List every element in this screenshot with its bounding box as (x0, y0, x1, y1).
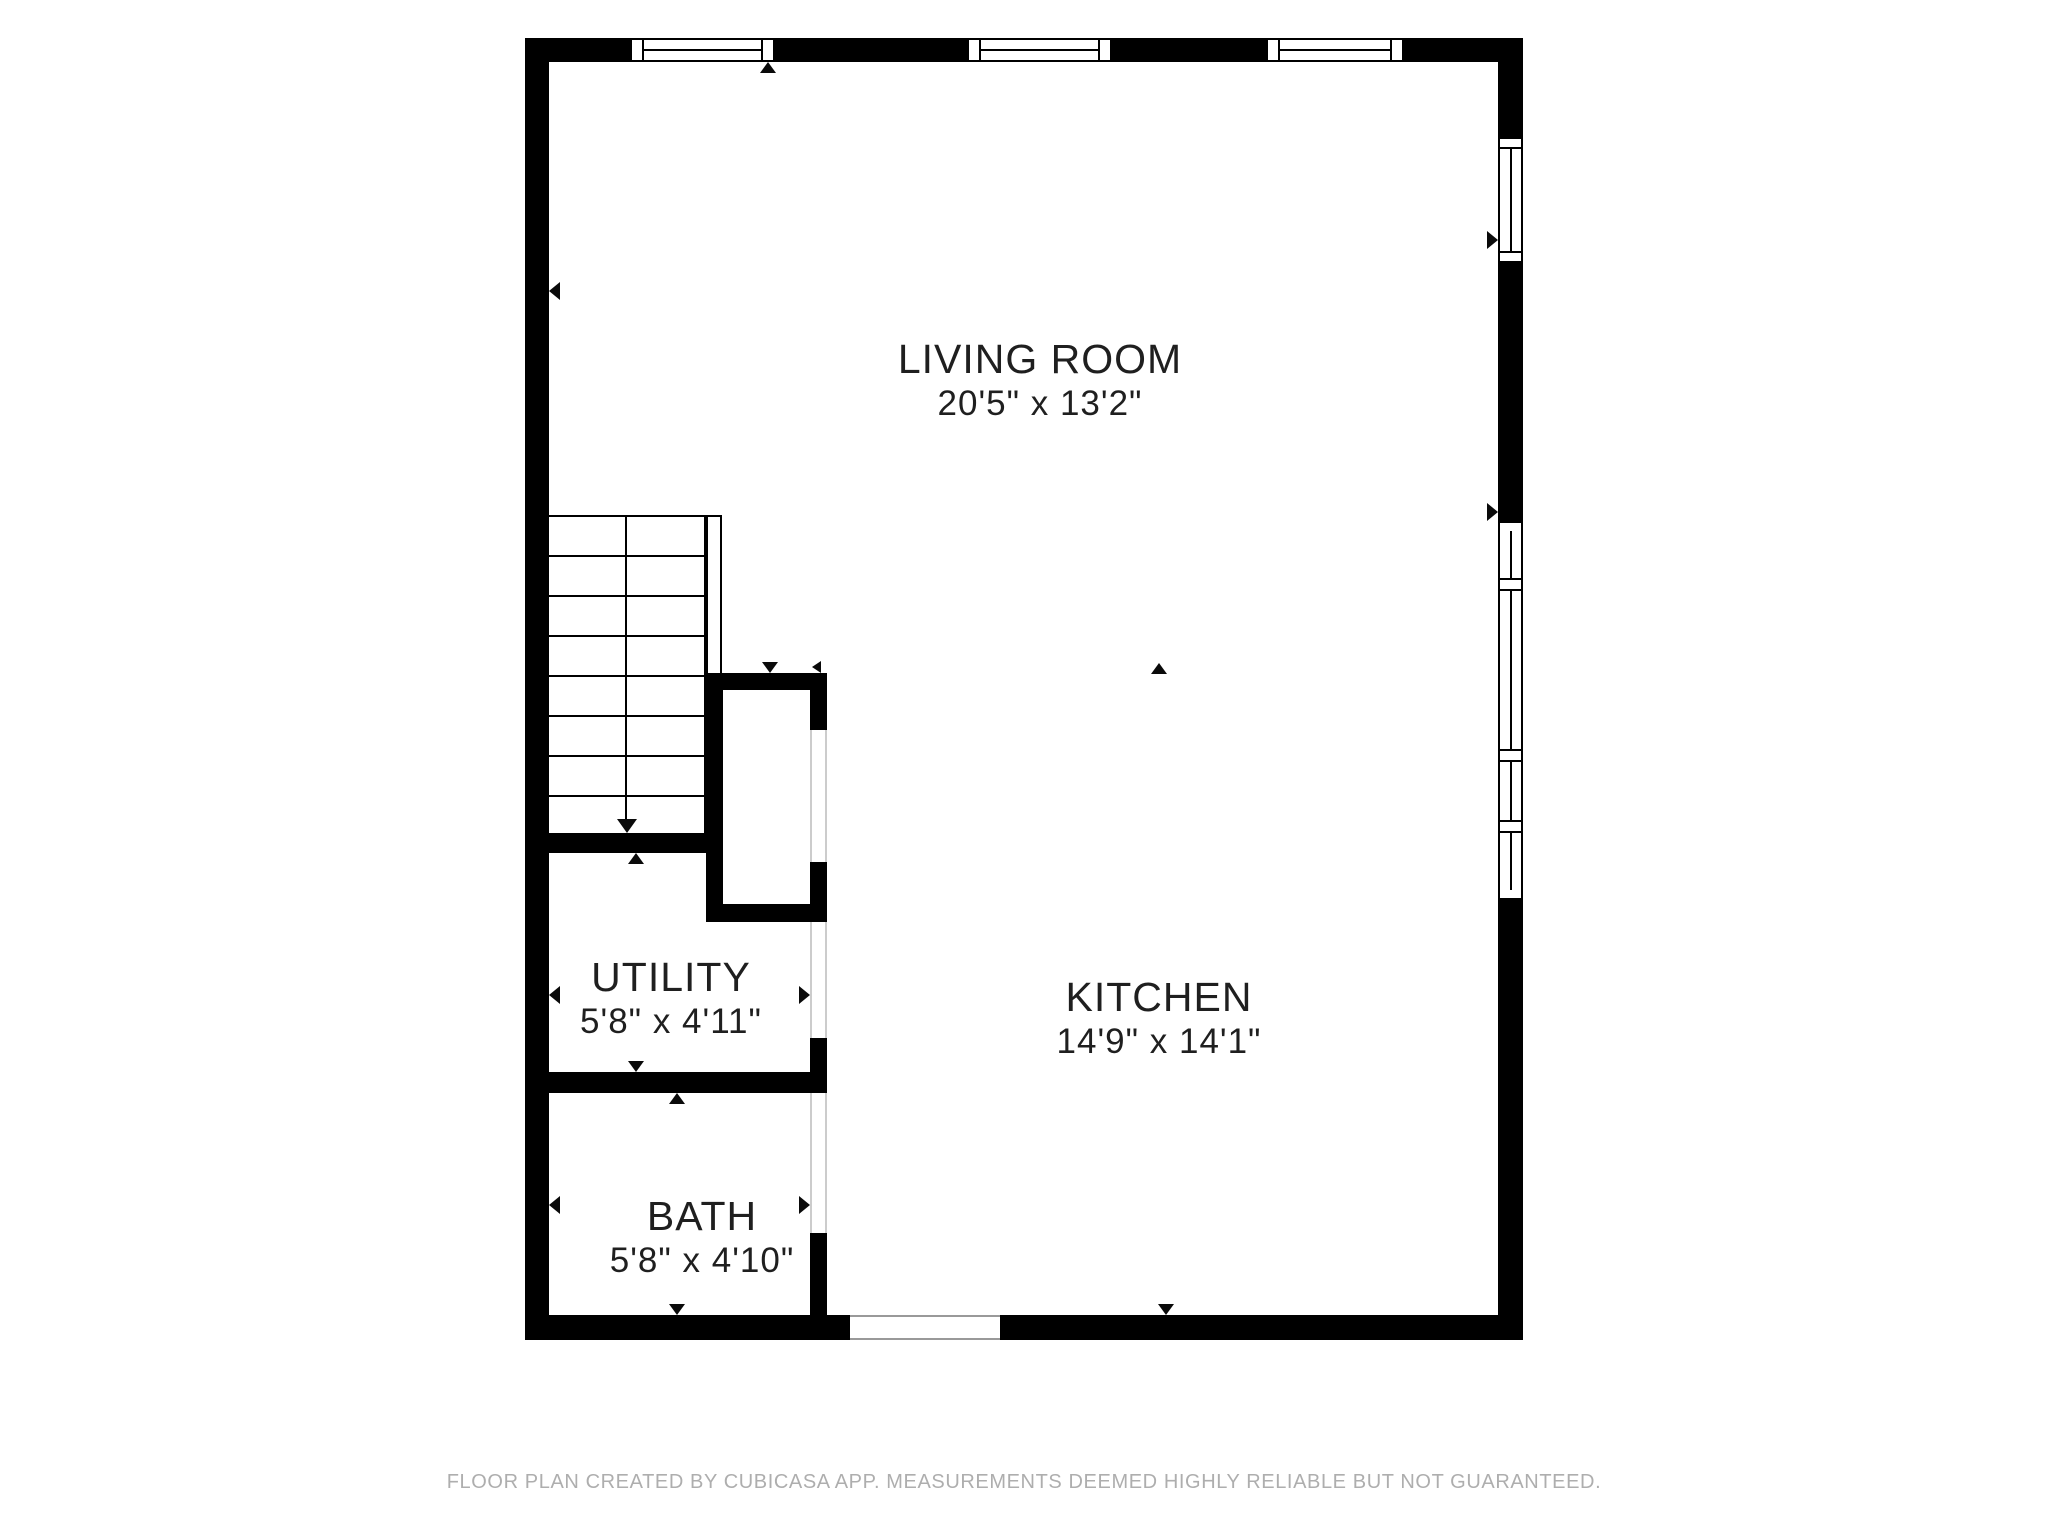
room-name: KITCHEN (1057, 974, 1262, 1021)
closet-right-wall-upper (810, 673, 827, 730)
utility-bath-divider-wall (525, 1072, 827, 1093)
room-label-living-room: LIVING ROOM 20'5" x 13'2" (898, 336, 1182, 425)
window-mullion (1500, 820, 1521, 833)
window-frame-line (1390, 40, 1392, 60)
room-dimensions: 5'8" x 4'10" (610, 1240, 795, 1282)
exterior-wall-left (525, 38, 549, 1340)
measure-arrow-right-icon (1487, 503, 1498, 521)
measure-arrow-left-icon (549, 282, 560, 300)
measure-arrow-down-icon (628, 1061, 644, 1072)
room-name: UTILITY (580, 954, 762, 1001)
closet-door-opening-guide-left (810, 730, 812, 862)
floor-plan-canvas: LIVING ROOM 20'5" x 13'2" KITCHEN 14'9" … (0, 0, 2048, 1536)
measure-arrow-left-icon (812, 661, 821, 673)
measure-arrow-down-icon (669, 1304, 685, 1315)
measure-arrow-up-icon (628, 853, 644, 864)
bath-right-wall (810, 1233, 827, 1340)
measure-arrow-down-icon (1158, 1304, 1174, 1315)
stair-walk-line (625, 517, 627, 821)
measure-arrow-right-icon (1487, 231, 1498, 249)
window-mullion (1500, 578, 1521, 591)
measure-arrow-right-icon (799, 1196, 810, 1214)
measure-arrow-left-icon (549, 986, 560, 1004)
window-right-1 (1498, 137, 1523, 263)
stair-handrail (706, 515, 722, 673)
window-frame-line (761, 40, 763, 60)
closet-bottom-wall (706, 904, 827, 922)
window-glass-line (1510, 149, 1512, 251)
room-dimensions: 20'5" x 13'2" (898, 383, 1182, 425)
measure-arrow-up-icon (1151, 663, 1167, 674)
window-top-1 (630, 38, 775, 62)
window-mullion (1500, 749, 1521, 762)
window-glass-line (644, 49, 761, 51)
room-dimensions: 14'9" x 14'1" (1057, 1021, 1262, 1063)
window-top-2 (967, 38, 1112, 62)
window-glass-line (1280, 49, 1390, 51)
room-label-kitchen: KITCHEN 14'9" x 14'1" (1057, 974, 1262, 1063)
stairs-bottom-wall (525, 833, 723, 853)
room-name: BATH (610, 1193, 795, 1240)
window-glass-line (981, 49, 1098, 51)
room-label-bath: BATH 5'8" x 4'10" (610, 1193, 795, 1282)
measure-arrow-right-icon (799, 986, 810, 1004)
bath-door-opening-guide-right (825, 1093, 827, 1233)
utility-door-opening-guide-right (825, 922, 827, 1038)
staircase (549, 515, 706, 833)
exterior-wall-bottom (525, 1315, 1523, 1340)
measure-arrow-left-icon (549, 1196, 560, 1214)
room-dimensions: 5'8" x 4'11" (580, 1001, 762, 1043)
room-name: LIVING ROOM (898, 336, 1182, 383)
measure-arrow-up-icon (760, 62, 776, 73)
room-label-utility: UTILITY 5'8" x 4'11" (580, 954, 762, 1043)
patio-door-opening (850, 1315, 1000, 1340)
stair-direction-arrow-icon (617, 819, 637, 833)
measure-arrow-up-icon (669, 1093, 685, 1104)
closet-left-wall (706, 673, 723, 922)
measure-arrow-down-icon (762, 662, 778, 673)
utility-door-opening-guide-left (810, 922, 812, 1038)
window-top-3 (1266, 38, 1404, 62)
closet-top-wall (706, 673, 827, 690)
bath-door-opening-guide-left (810, 1093, 812, 1233)
window-frame-line (1500, 251, 1521, 253)
closet-door-opening-guide-right (825, 730, 827, 862)
window-right-2-assembly (1498, 521, 1523, 900)
window-frame-line (1098, 40, 1100, 60)
utility-right-wall (810, 1038, 827, 1093)
footer-credit-text: FLOOR PLAN CREATED BY CUBICASA APP. MEAS… (0, 1471, 2048, 1494)
